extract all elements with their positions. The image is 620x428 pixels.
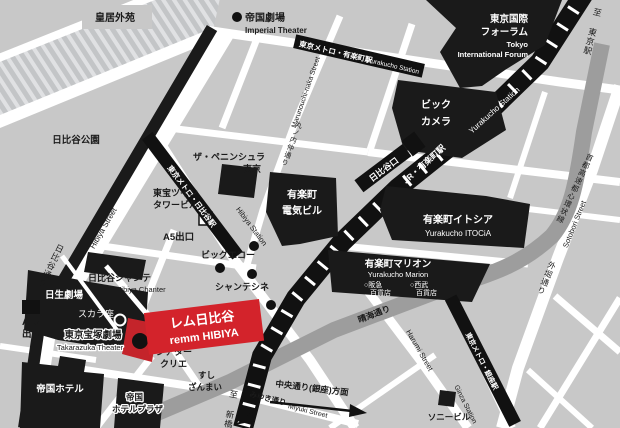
forum-label-en1: Tokyo [506, 40, 528, 49]
forum-label-jp1: 東京国際 [489, 13, 529, 25]
imperial-hotel-label: 帝国ホテル [36, 383, 84, 395]
marion-label-en: Yurakucho Marion [368, 270, 428, 279]
itocia-label-jp: 有楽町イトシア [423, 213, 493, 226]
marion-seibu-1: ○西武 [410, 280, 428, 289]
exit-a13-marker [22, 300, 40, 314]
itocia-label-en: Yurakucho ITOCiA [425, 229, 492, 238]
exit-a5-label: A5出口 [163, 231, 194, 243]
chante-cine-dot [247, 269, 257, 279]
marion-hankyu-1: ○阪急 [364, 280, 382, 289]
station-exit-dot-2 [266, 300, 276, 310]
sony-building-label: ソニービル [428, 412, 471, 422]
big-echo-label: ビッグエコー [201, 249, 255, 260]
sushi-zanmai-label-1: すし [198, 370, 215, 380]
scala-za-label: スカラ座 [78, 308, 114, 319]
imperial-theater-dot [232, 12, 242, 22]
chanter-label-jp: 日比谷シャンテ [88, 272, 151, 283]
forum-label-en2: International Forum [458, 50, 529, 59]
imperial-theater-label: 帝国劇場 [245, 11, 285, 24]
imperial-palace-garden-label: 皇居外苑 [95, 11, 135, 24]
takarazuka-label-jp: 東京宝塚劇場 [63, 329, 122, 341]
big-echo-dot [215, 263, 225, 273]
marion-seibu-2: 百貨店 [416, 288, 437, 297]
toho-label-1: 東宝ツイン [153, 187, 198, 198]
exit-a13-label-1: A13 [22, 317, 39, 328]
peninsula-label-2: 東京 [243, 163, 261, 174]
toho-label-2: タワービル [153, 199, 198, 210]
peninsula-label-1: ザ・ペニンシュラ [193, 152, 265, 162]
hibiya-area-map: 東京メトロ・有楽町駅 Yurakucho Station 東京メトロ・日比谷駅 … [0, 0, 620, 428]
theatre-creation-label-2: クリエ [160, 359, 187, 369]
marion-hankyu-2: 百貨店 [370, 288, 391, 297]
denki-label-1: 有楽町 [287, 188, 317, 201]
imperial-theater-label-en: Imperial Theater [245, 26, 307, 35]
sushi-zanmai-label-2: ざんまい [188, 382, 222, 392]
exit-a13-label-2: 出口 [22, 328, 41, 340]
chante-cine-label: シャンテシネ [215, 282, 269, 292]
map-canvas: 東京メトロ・有楽町駅 Yurakucho Station 東京メトロ・日比谷駅 … [0, 0, 620, 428]
nissay-theatre-label: 日生劇場 [45, 289, 84, 301]
sony-building-shape [438, 390, 456, 407]
imperial-hotel-plaza-label-1: 帝国 [126, 392, 143, 402]
marion-label-jp: 有楽町マリオン [365, 258, 432, 270]
bic-camera-label-1: ビック [421, 98, 451, 111]
imperial-hotel-plaza-label-2: ホテルプラザ [112, 404, 164, 414]
takarazuka-label-en: Takarazuka Theater [57, 343, 124, 352]
remm-hibiya-marker-dot [132, 333, 148, 349]
imperial-hotel-plaza-building [114, 378, 164, 428]
chanter-label-en: Hibiya Chanter [116, 285, 166, 294]
bic-camera-label-2: カメラ [421, 116, 451, 128]
forum-label-jp2: フォーラム [481, 27, 529, 38]
hibiya-park-label: 日比谷公園 [52, 134, 100, 146]
denki-label-2: 電気ビル [282, 204, 322, 217]
